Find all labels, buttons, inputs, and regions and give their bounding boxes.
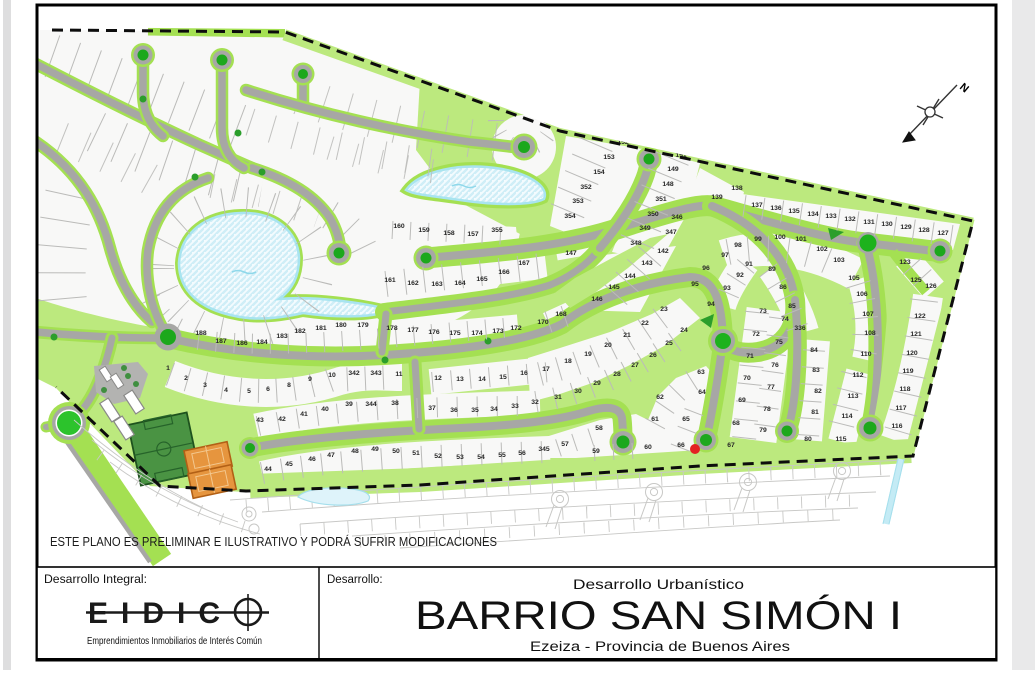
- svg-text:54: 54: [477, 454, 485, 461]
- svg-text:106: 106: [856, 291, 868, 298]
- svg-text:69: 69: [738, 397, 746, 404]
- svg-text:81: 81: [811, 409, 819, 416]
- svg-text:53: 53: [456, 454, 464, 461]
- svg-text:135: 135: [788, 208, 800, 215]
- svg-text:21: 21: [623, 332, 631, 339]
- svg-text:128: 128: [918, 227, 930, 234]
- svg-text:5: 5: [247, 388, 251, 395]
- svg-text:144: 144: [624, 273, 636, 280]
- svg-text:165: 165: [476, 276, 488, 283]
- svg-text:188: 188: [195, 330, 207, 337]
- svg-text:121: 121: [910, 331, 922, 338]
- svg-text:126: 126: [925, 283, 937, 290]
- svg-text:6: 6: [266, 386, 270, 393]
- svg-text:143: 143: [641, 260, 653, 267]
- svg-text:182: 182: [294, 328, 306, 335]
- svg-text:37: 37: [428, 405, 436, 412]
- svg-text:77: 77: [767, 384, 775, 391]
- svg-text:134: 134: [807, 211, 819, 218]
- svg-text:183: 183: [276, 333, 288, 340]
- svg-text:92: 92: [736, 272, 744, 279]
- svg-text:184: 184: [256, 339, 268, 346]
- svg-text:48: 48: [351, 448, 359, 455]
- svg-text:66: 66: [677, 442, 685, 449]
- svg-text:29: 29: [593, 380, 601, 387]
- svg-text:82: 82: [814, 388, 822, 395]
- svg-text:47: 47: [327, 452, 335, 459]
- svg-text:60: 60: [644, 444, 652, 451]
- svg-text:10: 10: [328, 372, 336, 379]
- svg-text:118: 118: [900, 386, 911, 393]
- svg-text:162: 162: [407, 280, 419, 287]
- svg-text:146: 146: [591, 296, 603, 303]
- svg-text:113: 113: [848, 393, 859, 400]
- svg-text:50: 50: [392, 448, 400, 455]
- svg-text:153: 153: [603, 154, 615, 161]
- svg-text:353: 353: [572, 198, 584, 205]
- svg-text:25: 25: [665, 340, 673, 347]
- svg-text:75: 75: [775, 339, 783, 346]
- svg-text:3: 3: [203, 382, 207, 389]
- svg-text:46: 46: [308, 456, 316, 463]
- svg-text:14: 14: [478, 376, 486, 383]
- svg-text:108: 108: [864, 330, 876, 337]
- svg-text:12: 12: [434, 375, 442, 382]
- svg-text:1: 1: [166, 365, 170, 372]
- svg-text:61: 61: [651, 416, 659, 423]
- svg-text:136: 136: [770, 205, 782, 212]
- svg-text:55: 55: [498, 452, 506, 459]
- svg-text:177: 177: [407, 327, 419, 334]
- svg-text:352: 352: [580, 184, 592, 191]
- svg-text:44: 44: [264, 466, 272, 473]
- svg-text:147: 147: [565, 250, 577, 257]
- svg-text:8: 8: [287, 382, 291, 389]
- svg-text:70: 70: [743, 375, 751, 382]
- svg-text:346: 346: [671, 214, 683, 221]
- svg-text:133: 133: [825, 213, 837, 220]
- svg-text:342: 342: [348, 370, 360, 377]
- svg-text:96: 96: [702, 265, 710, 272]
- svg-text:16: 16: [520, 370, 528, 377]
- svg-text:67: 67: [727, 442, 735, 449]
- svg-text:181: 181: [315, 325, 327, 332]
- svg-text:95: 95: [691, 281, 699, 288]
- svg-text:170: 170: [537, 319, 549, 326]
- svg-text:122: 122: [914, 313, 926, 320]
- svg-text:76: 76: [771, 362, 779, 369]
- svg-text:347: 347: [665, 229, 677, 236]
- svg-text:94: 94: [707, 301, 715, 308]
- svg-text:91: 91: [745, 261, 753, 268]
- svg-text:52: 52: [434, 453, 442, 460]
- svg-text:129: 129: [900, 224, 912, 231]
- svg-text:159: 159: [418, 227, 430, 234]
- svg-text:349: 349: [639, 225, 651, 232]
- svg-text:49: 49: [371, 446, 379, 453]
- svg-text:18: 18: [564, 358, 572, 365]
- svg-text:Desarrollo Integral:: Desarrollo Integral:: [44, 572, 147, 586]
- svg-text:Emprendimientos Inmobiliarios: Emprendimientos Inmobiliarios de Interés…: [87, 636, 262, 647]
- svg-text:175: 175: [449, 330, 461, 337]
- svg-text:74: 74: [781, 316, 789, 323]
- svg-text:41: 41: [300, 411, 308, 418]
- svg-text:336: 336: [794, 325, 806, 332]
- svg-text:40: 40: [321, 406, 329, 413]
- svg-text:27: 27: [631, 362, 639, 369]
- svg-text:344: 344: [365, 401, 377, 408]
- svg-text:Desarrollo Urbanístico: Desarrollo Urbanístico: [573, 577, 744, 592]
- svg-text:350: 350: [647, 211, 659, 218]
- svg-text:83: 83: [812, 367, 820, 374]
- svg-text:130: 130: [881, 221, 893, 228]
- svg-text:348: 348: [630, 240, 642, 247]
- svg-text:158: 158: [443, 230, 455, 237]
- svg-text:15: 15: [499, 374, 507, 381]
- svg-text:123: 123: [899, 259, 911, 266]
- svg-text:64: 64: [698, 389, 706, 396]
- svg-text:4: 4: [224, 387, 228, 394]
- svg-text:166: 166: [498, 269, 510, 276]
- svg-text:Ezeiza - Provincia de Buenos A: Ezeiza - Provincia de Buenos Aires: [530, 639, 790, 654]
- svg-text:119: 119: [903, 368, 914, 375]
- svg-text:58: 58: [595, 425, 603, 432]
- svg-text:187: 187: [215, 338, 227, 345]
- svg-text:28: 28: [613, 371, 621, 378]
- svg-text:180: 180: [335, 322, 347, 329]
- svg-text:114: 114: [842, 413, 853, 420]
- svg-text:142: 142: [657, 248, 669, 255]
- svg-text:68: 68: [732, 420, 740, 427]
- svg-text:127: 127: [937, 230, 949, 237]
- svg-text:Desarrollo:: Desarrollo:: [327, 574, 383, 586]
- svg-text:20: 20: [604, 342, 612, 349]
- svg-text:24: 24: [680, 327, 688, 334]
- svg-text:107: 107: [862, 311, 874, 318]
- svg-text:89: 89: [768, 266, 776, 273]
- svg-text:161: 161: [384, 277, 396, 284]
- svg-text:56: 56: [518, 450, 526, 457]
- svg-text:163: 163: [431, 281, 443, 288]
- svg-text:23: 23: [660, 306, 668, 313]
- svg-text:137: 137: [751, 202, 763, 209]
- svg-text:38: 38: [391, 400, 399, 407]
- svg-text:45: 45: [285, 461, 293, 468]
- svg-text:30: 30: [574, 388, 582, 395]
- svg-text:105: 105: [848, 275, 860, 282]
- svg-text:63: 63: [697, 369, 705, 376]
- svg-text:148: 148: [662, 181, 674, 188]
- svg-text:345: 345: [538, 446, 550, 453]
- svg-text:100: 100: [774, 234, 786, 241]
- svg-text:172: 172: [510, 325, 522, 332]
- svg-text:173: 173: [492, 328, 504, 335]
- svg-text:19: 19: [584, 351, 592, 358]
- svg-text:33: 33: [511, 403, 519, 410]
- svg-text:42: 42: [278, 416, 286, 423]
- svg-text:99: 99: [754, 236, 762, 243]
- svg-text:71: 71: [746, 353, 754, 360]
- svg-text:BARRIO SAN SIMÓN I: BARRIO SAN SIMÓN I: [415, 593, 902, 638]
- svg-text:26: 26: [649, 352, 657, 359]
- svg-text:36: 36: [450, 407, 458, 414]
- svg-text:116: 116: [892, 423, 903, 430]
- svg-text:167: 167: [518, 260, 530, 267]
- svg-text:125: 125: [910, 277, 922, 284]
- svg-text:72: 72: [752, 331, 760, 338]
- svg-text:160: 160: [393, 223, 405, 230]
- svg-text:168: 168: [555, 311, 567, 318]
- svg-text:351: 351: [655, 196, 667, 203]
- svg-text:138: 138: [731, 185, 743, 192]
- svg-text:103: 103: [833, 257, 845, 264]
- svg-text:110: 110: [861, 351, 872, 358]
- svg-text:ESTE PLANO ES PRELIMINAR E ILU: ESTE PLANO ES PRELIMINAR E ILUSTRATIVO Y…: [50, 534, 497, 549]
- svg-text:149: 149: [667, 166, 679, 173]
- svg-text:131: 131: [863, 219, 875, 226]
- svg-text:80: 80: [804, 436, 812, 443]
- svg-text:2: 2: [184, 375, 188, 382]
- svg-text:178: 178: [386, 325, 398, 332]
- svg-text:132: 132: [844, 216, 856, 223]
- svg-text:51: 51: [412, 450, 420, 457]
- svg-text:73: 73: [759, 308, 767, 315]
- svg-text:65: 65: [682, 416, 690, 423]
- svg-text:11: 11: [395, 371, 402, 378]
- svg-text:57: 57: [561, 441, 569, 448]
- svg-text:186: 186: [236, 340, 248, 347]
- svg-text:98: 98: [734, 242, 742, 249]
- svg-text:9: 9: [308, 376, 312, 383]
- svg-text:93: 93: [723, 285, 731, 292]
- svg-text:79: 79: [759, 427, 767, 434]
- svg-text:154: 154: [593, 169, 605, 176]
- svg-text:84: 84: [810, 347, 818, 354]
- svg-text:97: 97: [721, 252, 729, 259]
- svg-text:86: 86: [779, 284, 787, 291]
- svg-text:115: 115: [836, 436, 847, 443]
- svg-text:157: 157: [467, 231, 479, 238]
- svg-text:117: 117: [896, 405, 907, 412]
- svg-text:78: 78: [763, 406, 771, 413]
- svg-text:179: 179: [357, 322, 369, 329]
- svg-text:112: 112: [853, 372, 864, 379]
- svg-text:13: 13: [456, 376, 464, 383]
- svg-text:343: 343: [370, 370, 382, 377]
- svg-text:174: 174: [471, 330, 483, 337]
- svg-text:17: 17: [542, 366, 550, 373]
- svg-text:34: 34: [490, 406, 498, 413]
- svg-text:355: 355: [491, 227, 503, 234]
- svg-text:102: 102: [816, 246, 828, 253]
- svg-text:139: 139: [711, 194, 723, 201]
- svg-text:354: 354: [564, 213, 576, 220]
- svg-text:120: 120: [906, 350, 918, 357]
- svg-text:145: 145: [608, 284, 620, 291]
- svg-text:176: 176: [428, 329, 440, 336]
- svg-text:43: 43: [256, 417, 264, 424]
- svg-text:164: 164: [454, 280, 466, 287]
- svg-text:101: 101: [795, 236, 807, 243]
- svg-text:85: 85: [788, 303, 796, 310]
- svg-text:31: 31: [554, 394, 562, 401]
- svg-text:35: 35: [471, 407, 479, 414]
- svg-text:62: 62: [656, 394, 664, 401]
- svg-text:59: 59: [592, 448, 600, 455]
- svg-text:22: 22: [641, 320, 649, 327]
- svg-text:32: 32: [531, 399, 539, 406]
- svg-text:39: 39: [345, 401, 353, 408]
